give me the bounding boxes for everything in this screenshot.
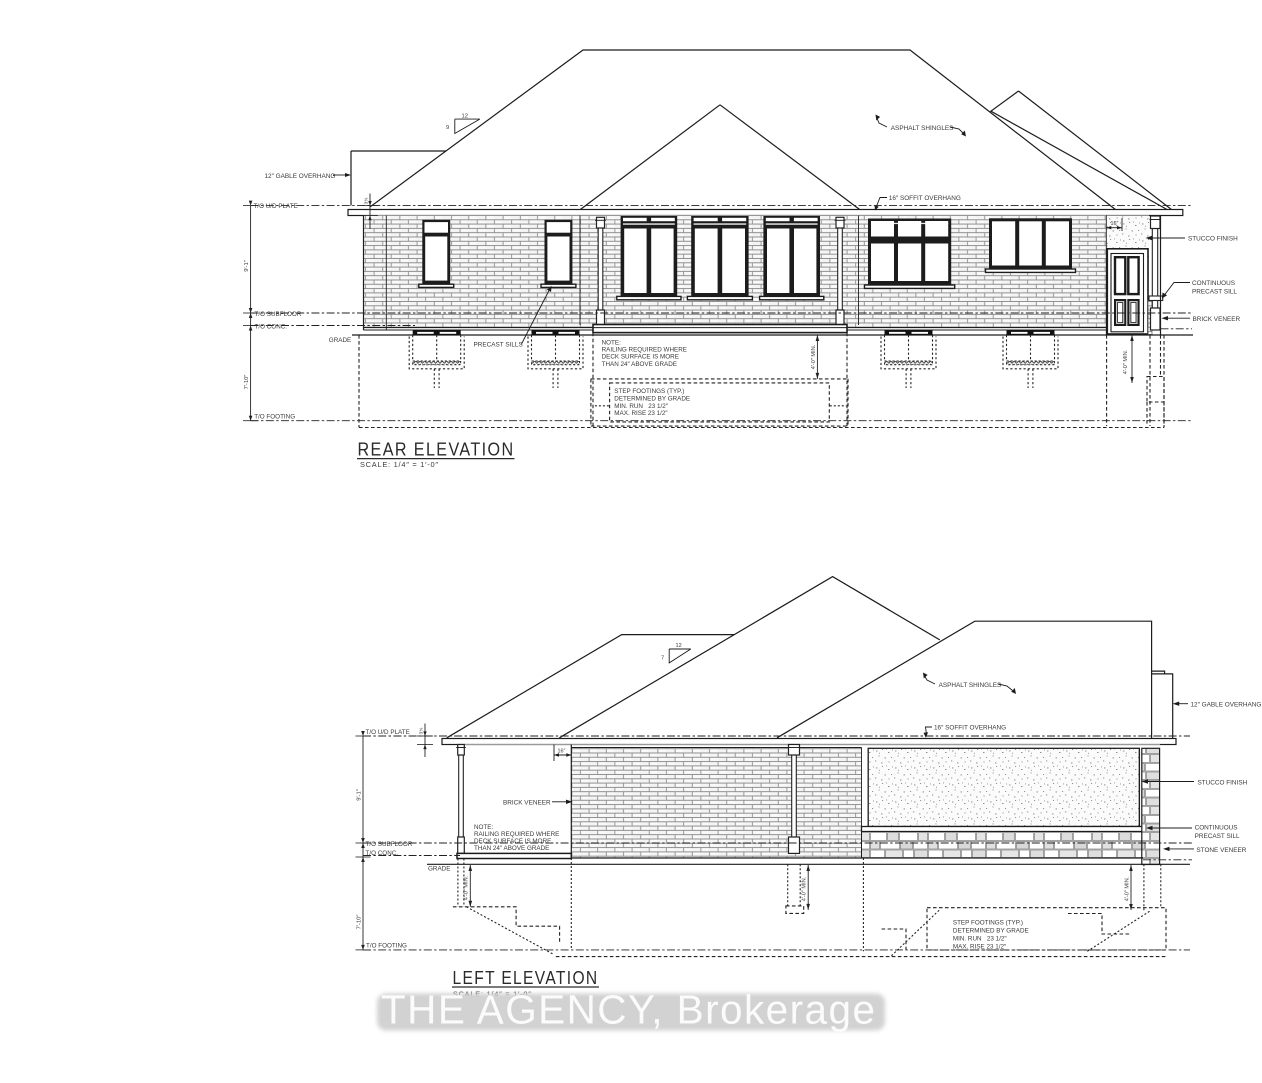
- svg-text:BRICK VENEER: BRICK VENEER: [503, 800, 551, 807]
- svg-text:12: 12: [676, 643, 682, 649]
- svg-text:T/O SUBFLOOR: T/O SUBFLOOR: [366, 841, 413, 848]
- svg-text:STUCCO FINISH: STUCCO FINISH: [1198, 779, 1248, 786]
- svg-text:7: 7: [661, 656, 664, 662]
- svg-text:MIN. RUN 23 1/2″: MIN. RUN 23 1/2″: [614, 403, 668, 410]
- svg-text:PRECAST SILL: PRECAST SILL: [1195, 833, 1240, 840]
- svg-text:T/O SUBFLOOR: T/O SUBFLOOR: [255, 311, 302, 318]
- svg-text:T/O CONC.: T/O CONC.: [255, 324, 288, 331]
- svg-text:T/O FOOTING: T/O FOOTING: [366, 943, 407, 950]
- svg-text:NOTE:: NOTE:: [602, 340, 621, 347]
- svg-text:LEFT ELEVATION: LEFT ELEVATION: [453, 967, 599, 988]
- svg-text:16″ SOFFIT OVERHANG: 16″ SOFFIT OVERHANG: [934, 725, 1006, 732]
- svg-text:7′-10″: 7′-10″: [244, 375, 250, 390]
- svg-text:9: 9: [446, 125, 449, 131]
- svg-text:4′-0″ MIN.: 4′-0″ MIN.: [464, 875, 470, 900]
- svg-text:4′-0″ MIN.: 4′-0″ MIN.: [811, 344, 817, 369]
- svg-text:16″: 16″: [1111, 221, 1119, 227]
- svg-text:4′-0″ MIN.: 4′-0″ MIN.: [802, 876, 808, 901]
- svg-text:PRECAST SILLS: PRECAST SILLS: [474, 342, 523, 349]
- svg-text:12″ GABLE OVERHANG: 12″ GABLE OVERHANG: [265, 173, 336, 180]
- svg-text:4′-0″ MIN.: 4′-0″ MIN.: [1124, 876, 1130, 901]
- svg-text:MIN. RUN 23 1/2″: MIN. RUN 23 1/2″: [953, 936, 1007, 943]
- svg-text:STUCCO FINISH: STUCCO FINISH: [1188, 236, 1238, 243]
- svg-text:DETERMINED BY GRADE: DETERMINED BY GRADE: [953, 928, 1029, 935]
- svg-text:4′-0″ MIN.: 4′-0″ MIN.: [1123, 349, 1129, 374]
- svg-text:12: 12: [462, 114, 468, 120]
- svg-text:12″ GABLE OVERHANG: 12″ GABLE OVERHANG: [1191, 702, 1262, 709]
- svg-text:3⅛: 3⅛: [364, 198, 369, 205]
- svg-text:9′-1″: 9′-1″: [357, 789, 363, 801]
- svg-text:ASPHALT SHINGLES: ASPHALT SHINGLES: [939, 682, 1002, 689]
- svg-text:NOTE:: NOTE:: [474, 824, 493, 831]
- svg-text:T/O FOOTING: T/O FOOTING: [254, 413, 295, 420]
- svg-text:THAN 24″ ABOVE GRADE: THAN 24″ ABOVE GRADE: [474, 845, 549, 852]
- svg-text:RAILING REQUIRED WHERE: RAILING REQUIRED WHERE: [602, 347, 687, 354]
- svg-text:MAX. RISE 23 1/2″: MAX. RISE 23 1/2″: [953, 943, 1007, 950]
- svg-text:16″ SOFFIT OVERHANG: 16″ SOFFIT OVERHANG: [889, 195, 961, 202]
- svg-text:PRECAST SILL: PRECAST SILL: [1192, 289, 1237, 296]
- svg-text:REAR ELEVATION: REAR ELEVATION: [358, 439, 515, 460]
- svg-text:THAN 24″ ABOVE GRADE: THAN 24″ ABOVE GRADE: [602, 361, 677, 368]
- svg-text:SCALE: 1/4″ = 1′-0″: SCALE: 1/4″ = 1′-0″: [360, 460, 438, 469]
- svg-text:16″: 16″: [558, 749, 566, 755]
- svg-text:9′-1″: 9′-1″: [244, 260, 250, 272]
- svg-text:GRADE: GRADE: [329, 337, 351, 344]
- svg-text:DETERMINED BY GRADE: DETERMINED BY GRADE: [614, 396, 690, 403]
- svg-text:BRICK VENEER: BRICK VENEER: [1193, 316, 1241, 323]
- svg-text:GRADE: GRADE: [428, 866, 450, 873]
- svg-text:T/O U/D PLATE: T/O U/D PLATE: [254, 203, 298, 210]
- svg-text:MAX. RISE 23 1/2″: MAX. RISE 23 1/2″: [614, 410, 668, 417]
- svg-text:THE AGENCY, Brokerage: THE AGENCY, Brokerage: [381, 987, 875, 1033]
- svg-text:ASPHALT SHINGLES: ASPHALT SHINGLES: [891, 125, 954, 132]
- svg-text:DECK SURFACE IS MORE: DECK SURFACE IS MORE: [602, 354, 679, 361]
- svg-text:STEP FOOTINGS (TYP.): STEP FOOTINGS (TYP.): [953, 920, 1023, 927]
- svg-text:7′-10″: 7′-10″: [357, 915, 363, 930]
- svg-text:T/O CONC.: T/O CONC.: [366, 850, 399, 857]
- svg-text:T/O U/D PLATE: T/O U/D PLATE: [366, 729, 410, 736]
- svg-text:STONE VENEER: STONE VENEER: [1196, 847, 1246, 854]
- svg-text:3⅛: 3⅛: [419, 728, 424, 735]
- svg-text:CONTINUOUS: CONTINUOUS: [1195, 825, 1238, 832]
- svg-text:CONTINUOUS: CONTINUOUS: [1192, 280, 1235, 287]
- svg-text:STEP FOOTINGS (TYP.): STEP FOOTINGS (TYP.): [614, 388, 684, 395]
